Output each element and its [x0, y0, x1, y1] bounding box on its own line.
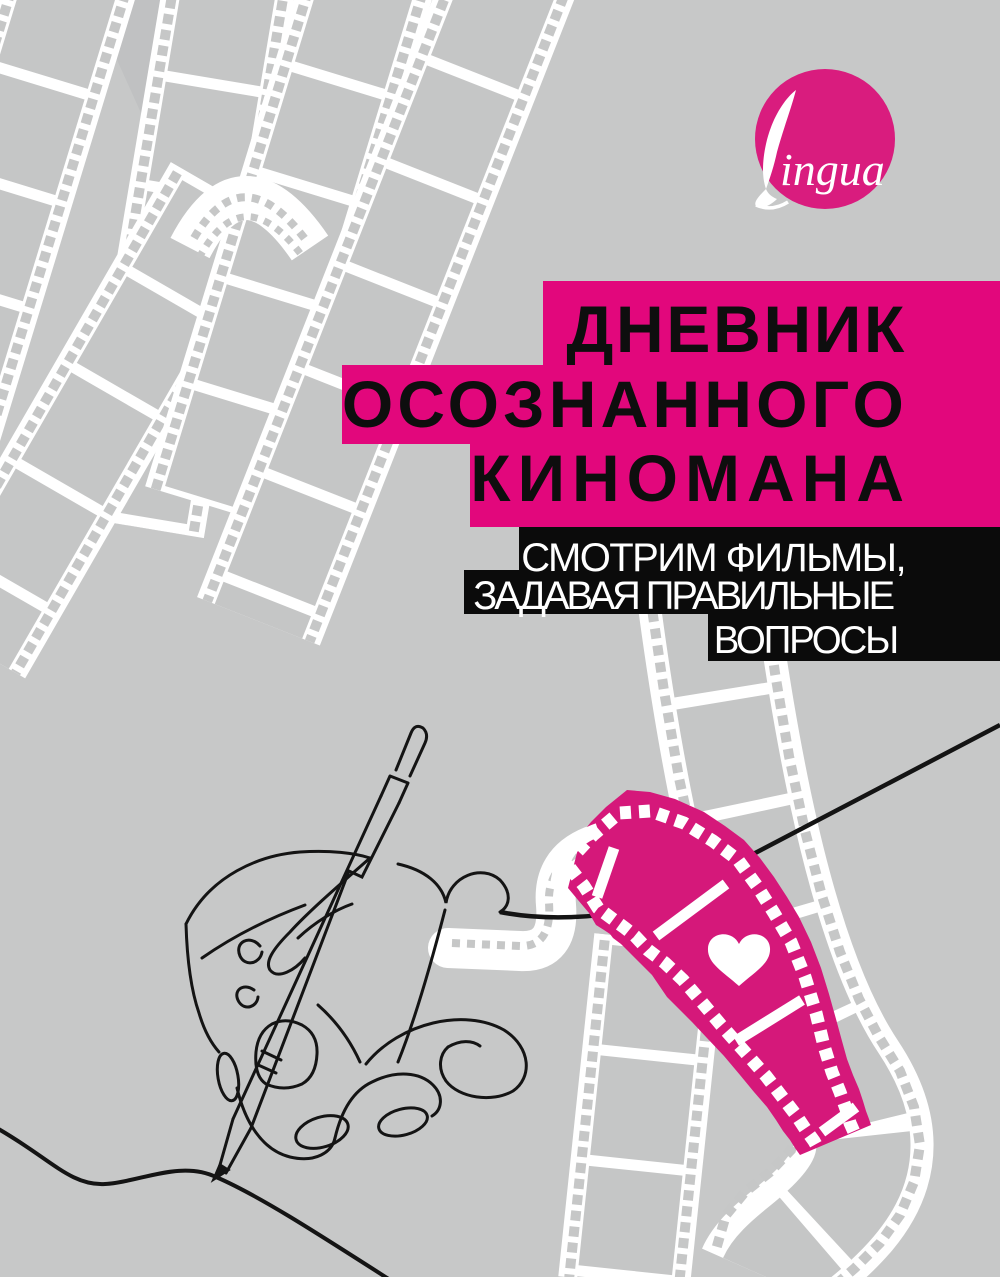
- svg-text:КИНОМАНА: КИНОМАНА: [470, 441, 911, 515]
- svg-text:ВОПРОСЫ: ВОПРОСЫ: [714, 619, 897, 662]
- svg-text:ЗАДАВАЯ ПРАВИЛЬНЫЕ: ЗАДАВАЯ ПРАВИЛЬНЫЕ: [473, 574, 893, 618]
- svg-text:ДНЕВНИК: ДНЕВНИК: [566, 292, 907, 366]
- svg-text:ОСОЗНАННОГО: ОСОЗНАННОГО: [342, 367, 908, 441]
- svg-text:ingua: ingua: [780, 144, 885, 195]
